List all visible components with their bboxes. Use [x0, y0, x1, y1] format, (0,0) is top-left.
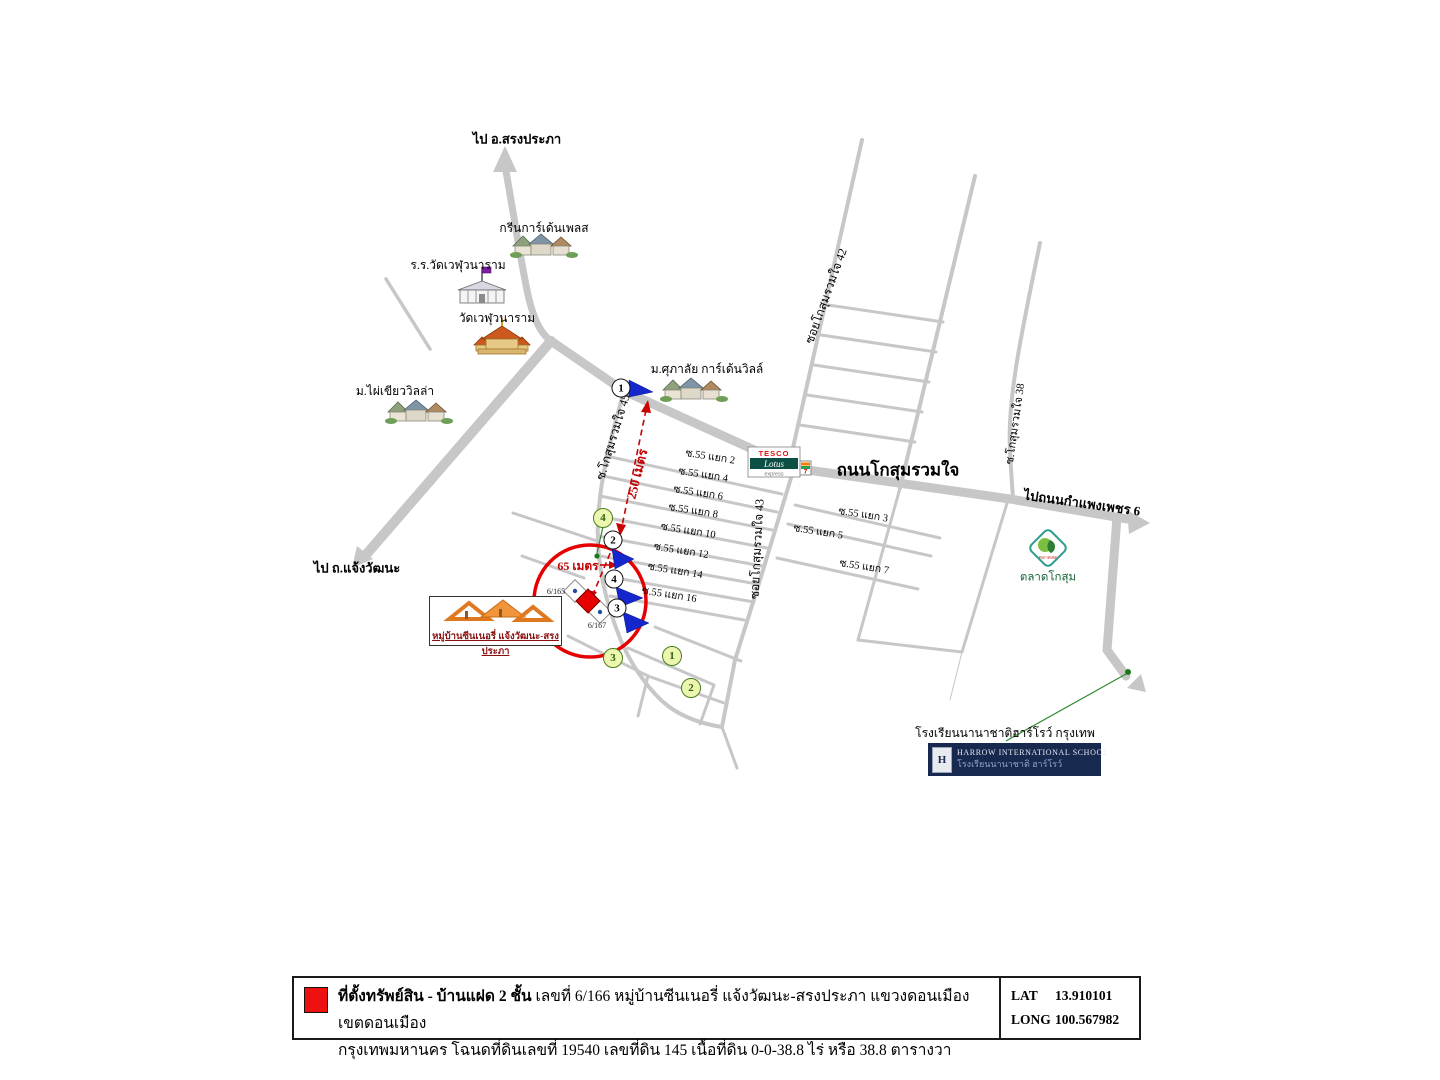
dest-southwest-label: ไป ถ.แจ้งวัฒนะ [314, 562, 400, 575]
house-number-6-165: 6/165 [547, 588, 565, 596]
supalai-label: ม.ศุภาลัย การ์เด้นวิลล์ [651, 363, 764, 375]
route-marker-4-number: 4 [611, 573, 617, 585]
seven-eleven-icon: 7 [800, 461, 811, 476]
harrow-banner-en: HARROW INTERNATIONAL SCHOOL [957, 748, 1108, 757]
school-icon [458, 267, 506, 303]
photo-marker-1-number: 1 [669, 650, 675, 662]
harrow-school-label: โรงเรียนนานาชาติฮาร์โรว์ กรุงเทพ [915, 727, 1095, 739]
house-number-6-167: 6/167 [588, 622, 606, 630]
photo-marker-3: 3 [603, 648, 623, 668]
wat-label: วัดเวฬุวนาราม [459, 312, 535, 324]
lane-top-left [386, 279, 430, 349]
svg-text:Lotus: Lotus [763, 459, 785, 469]
photo-marker-1: 1 [662, 646, 682, 666]
svg-text:ตลาดสด: ตลาดสด [1039, 555, 1058, 561]
flag-1-icon [629, 380, 653, 397]
property-description-line2: กรุงเทพมหานคร โฉนดที่ดินเลขที่ 19540 เลข… [338, 1037, 991, 1064]
property-description-line1: ที่ตั้งทรัพย์สิน - บ้านแฝด 2 ชั้น เลขที่… [338, 983, 991, 1037]
flag-2-icon [612, 549, 634, 569]
long-value: 100.567982 [1055, 1012, 1119, 1028]
phai-khiao-houses-icon [385, 400, 453, 424]
long-label: LONG [1011, 1012, 1055, 1028]
lat-value: 13.910101 [1055, 988, 1112, 1004]
harrow-banner-th: โรงเรียนนานาชาติ ฮาร์โรว์ [957, 757, 1108, 771]
photo-marker-2-number: 2 [688, 682, 694, 694]
photo-marker-2: 2 [681, 678, 701, 698]
route-marker-3: 3 [608, 599, 627, 618]
route-marker-4: 4 [605, 570, 624, 589]
village-name-text: หมู่บ้านซีนเนอรี่ แจ้งวัฒนะ-สรงประภา [430, 629, 561, 659]
village-name-box: หมู่บ้านซีนเนอรี่ แจ้งวัฒนะ-สรงประภา [429, 596, 562, 646]
road-southwest-to-chaengwattana [364, 341, 551, 557]
green-garden-label: กรีนการ์เด้นเพลส [499, 222, 588, 234]
photo-marker-4: 4 [593, 508, 613, 528]
distance-65m-label: 65 เมตร [557, 560, 598, 572]
road-east-to-kamphaengphet [1107, 517, 1126, 676]
route-marker-2-number: 2 [610, 534, 616, 546]
village-roofs-icon [431, 597, 560, 623]
legend-bar: ที่ตั้งทรัพย์สิน - บ้านแฝด 2 ชั้น เลขที่… [292, 976, 1141, 1040]
dest-north-label: ไป อ.สรงประภา [473, 133, 561, 146]
latitude-row: LAT 13.910101 [1011, 988, 1139, 1004]
main-road-label: ถนนโกสุมรวมใจ [837, 462, 960, 479]
route-marker-1: 1 [612, 379, 631, 398]
road-right-block-b [962, 500, 1008, 652]
route-marker-3-number: 3 [614, 602, 620, 614]
svg-text:7: 7 [804, 469, 808, 476]
svg-text:express: express [764, 472, 784, 478]
photo-marker-3-number: 3 [610, 652, 616, 664]
phai-khiao-label: ม.ไผ่เขียววิลล่า [356, 385, 434, 397]
supalai-houses-icon [660, 378, 728, 402]
map-canvas: TESCO Lotus express 7 ตลาดสด [0, 0, 1440, 1080]
svg-text:TESCO: TESCO [759, 449, 790, 458]
tesco-lotus-logo: TESCO Lotus express [748, 447, 800, 478]
photo-marker-4-number: 4 [600, 512, 606, 524]
kosum-market-label: ตลาดโกสุม [1020, 572, 1076, 584]
route-marker-2: 2 [604, 531, 623, 550]
harrow-school-banner: H HARROW INTERNATIONAL SCHOOL โรงเรียนนา… [928, 743, 1101, 776]
property-legend-swatch [304, 987, 328, 1013]
property-location-map: TESCO Lotus express 7 ตลาดสด ไป อ.สรงประ… [0, 0, 1440, 1080]
kosum-market-logo: ตลาดสด [1028, 528, 1068, 568]
longitude-row: LONG 100.567982 [1011, 1012, 1139, 1028]
geo-coordinates: LAT 13.910101 LONG 100.567982 [999, 978, 1139, 1038]
lat-label: LAT [1011, 988, 1055, 1004]
wat-school-label: ร.ร.วัดเวฬุวนาราม [410, 259, 505, 271]
property-description: ที่ตั้งทรัพย์สิน - บ้านแฝด 2 ชั้น เลขที่… [338, 983, 991, 1064]
route-marker-1-number: 1 [618, 382, 624, 394]
property-description-lead: ที่ตั้งทรัพย์สิน - บ้านแฝด 2 ชั้น [338, 988, 532, 1005]
harrow-crest-icon: H [932, 747, 952, 773]
arrow-north-icon [493, 146, 517, 172]
